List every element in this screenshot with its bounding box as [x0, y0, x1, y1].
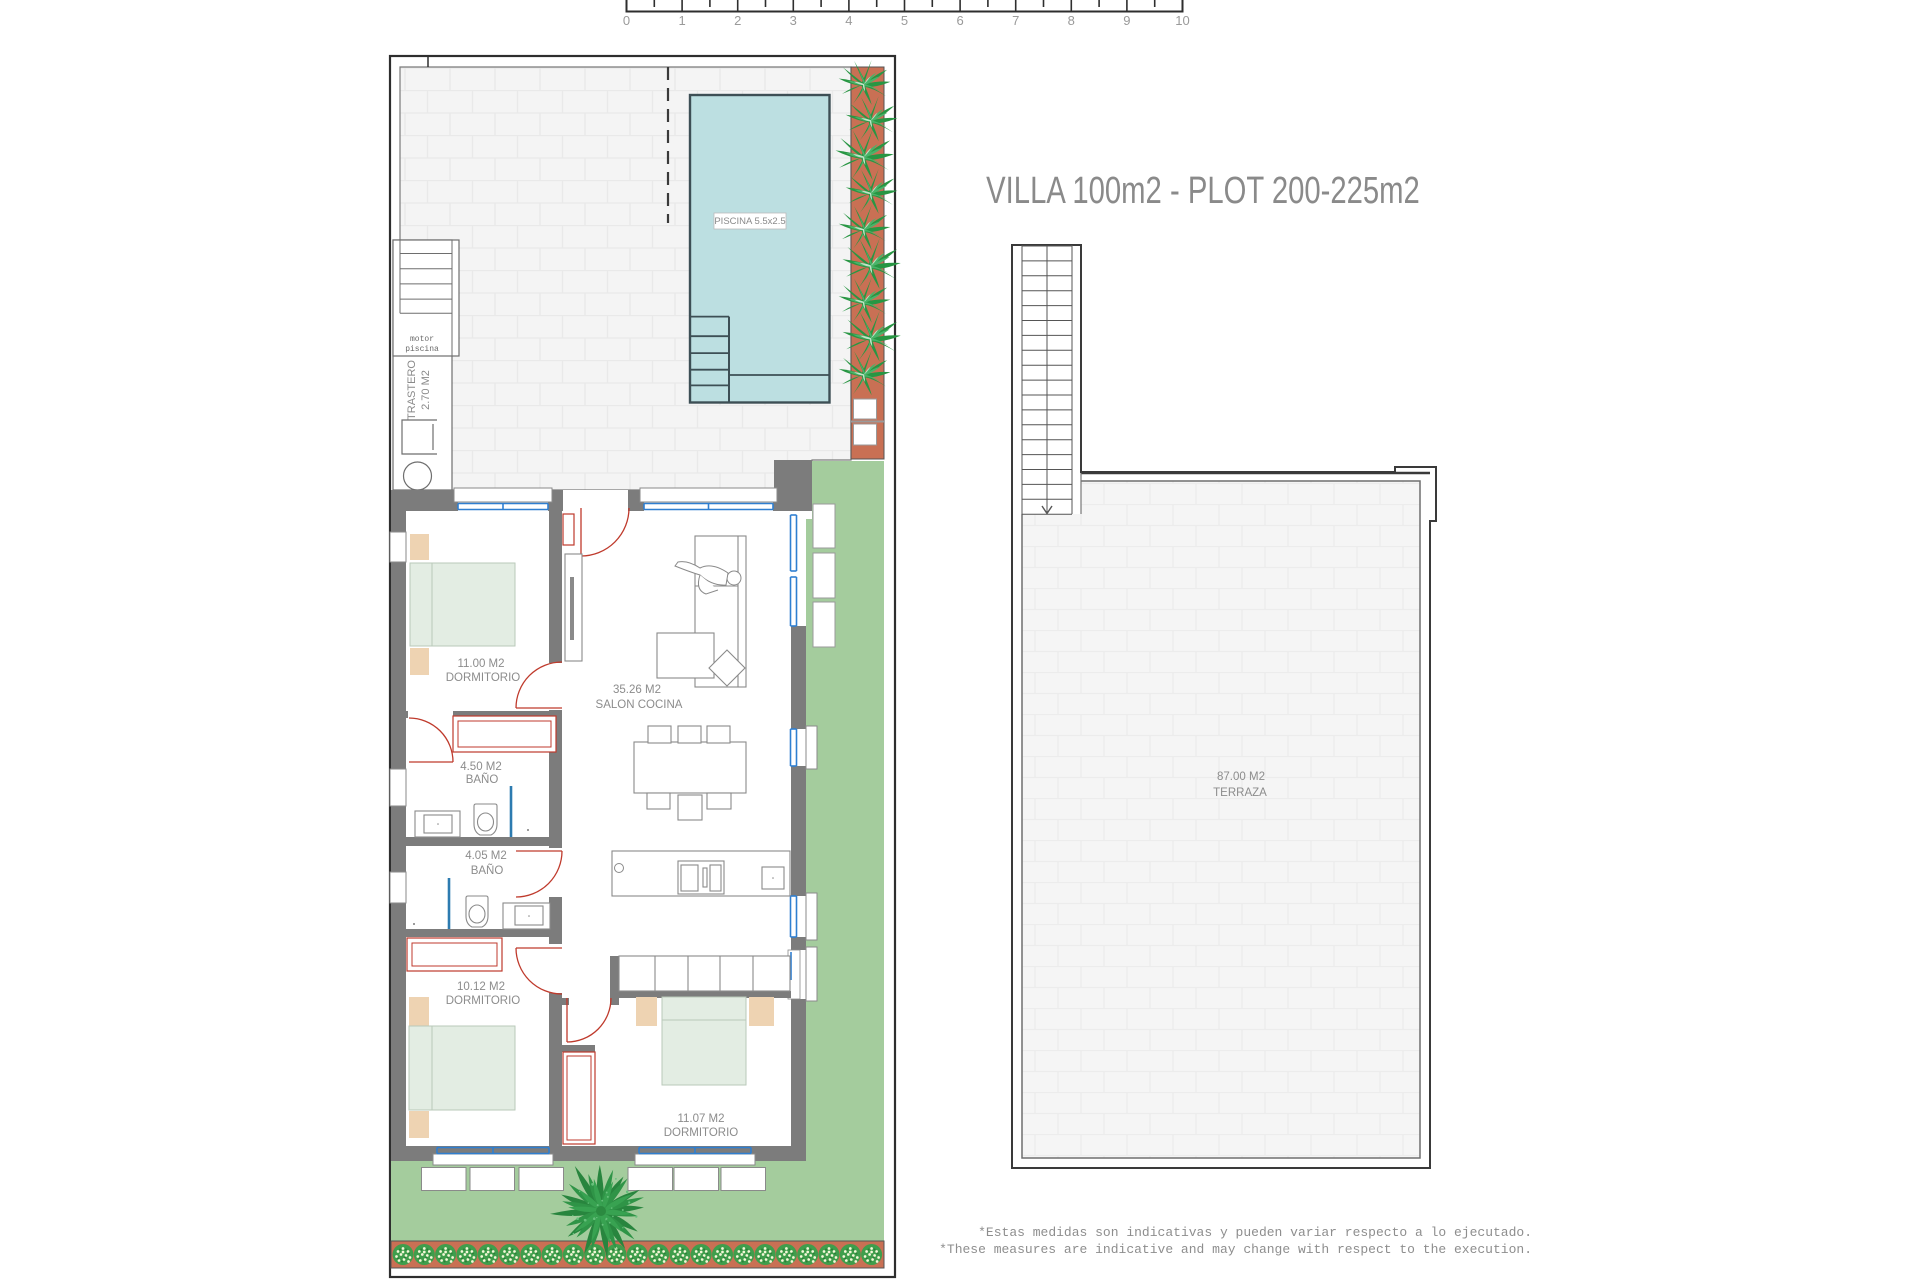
svg-text:DORMITORIO: DORMITORIO [446, 995, 521, 1007]
svg-text:PISCINA 5.5x2.5: PISCINA 5.5x2.5 [714, 216, 785, 227]
svg-text:2: 2 [734, 13, 741, 28]
svg-text:motor: motor [410, 335, 434, 344]
svg-text:*Estas medidas son indicativas: *Estas medidas son indicativas y pueden … [978, 1225, 1532, 1240]
svg-text:5: 5 [901, 13, 908, 28]
svg-text:8: 8 [1068, 13, 1075, 28]
svg-text:DORMITORIO: DORMITORIO [446, 672, 521, 684]
svg-text:6: 6 [956, 13, 963, 28]
svg-text:VILLA 100m2 - PLOT 200-225m2: VILLA 100m2 - PLOT 200-225m2 [986, 169, 1420, 212]
svg-text:10: 10 [1175, 13, 1189, 28]
svg-text:87.00 M2: 87.00 M2 [1217, 771, 1265, 783]
svg-text:BAÑO: BAÑO [466, 773, 499, 786]
svg-text:*These measures are indicative: *These measures are indicative and may c… [939, 1242, 1532, 1257]
svg-text:1: 1 [678, 13, 685, 28]
svg-text:4.05 M2: 4.05 M2 [465, 850, 507, 862]
svg-text:BAÑO: BAÑO [471, 864, 504, 877]
svg-text:7: 7 [1012, 13, 1019, 28]
svg-text:11.07 M2: 11.07 M2 [677, 1113, 724, 1125]
svg-text:2.70 M2: 2.70 M2 [420, 370, 432, 410]
svg-text:TRASTERO: TRASTERO [406, 360, 418, 420]
svg-text:SALON COCINA: SALON COCINA [596, 699, 683, 711]
svg-text:9: 9 [1123, 13, 1130, 28]
svg-text:11.00 M2: 11.00 M2 [457, 658, 504, 670]
svg-text:DORMITORIO: DORMITORIO [664, 1127, 739, 1139]
svg-text:TERRAZA: TERRAZA [1213, 787, 1267, 799]
svg-text:0: 0 [623, 13, 630, 28]
svg-text:3: 3 [790, 13, 797, 28]
svg-text:4: 4 [845, 13, 852, 28]
svg-text:35.26 M2: 35.26 M2 [613, 684, 661, 696]
svg-text:10.12 M2: 10.12 M2 [457, 981, 505, 993]
svg-text:piscina: piscina [405, 345, 439, 354]
svg-text:4.50 M2: 4.50 M2 [460, 761, 502, 773]
